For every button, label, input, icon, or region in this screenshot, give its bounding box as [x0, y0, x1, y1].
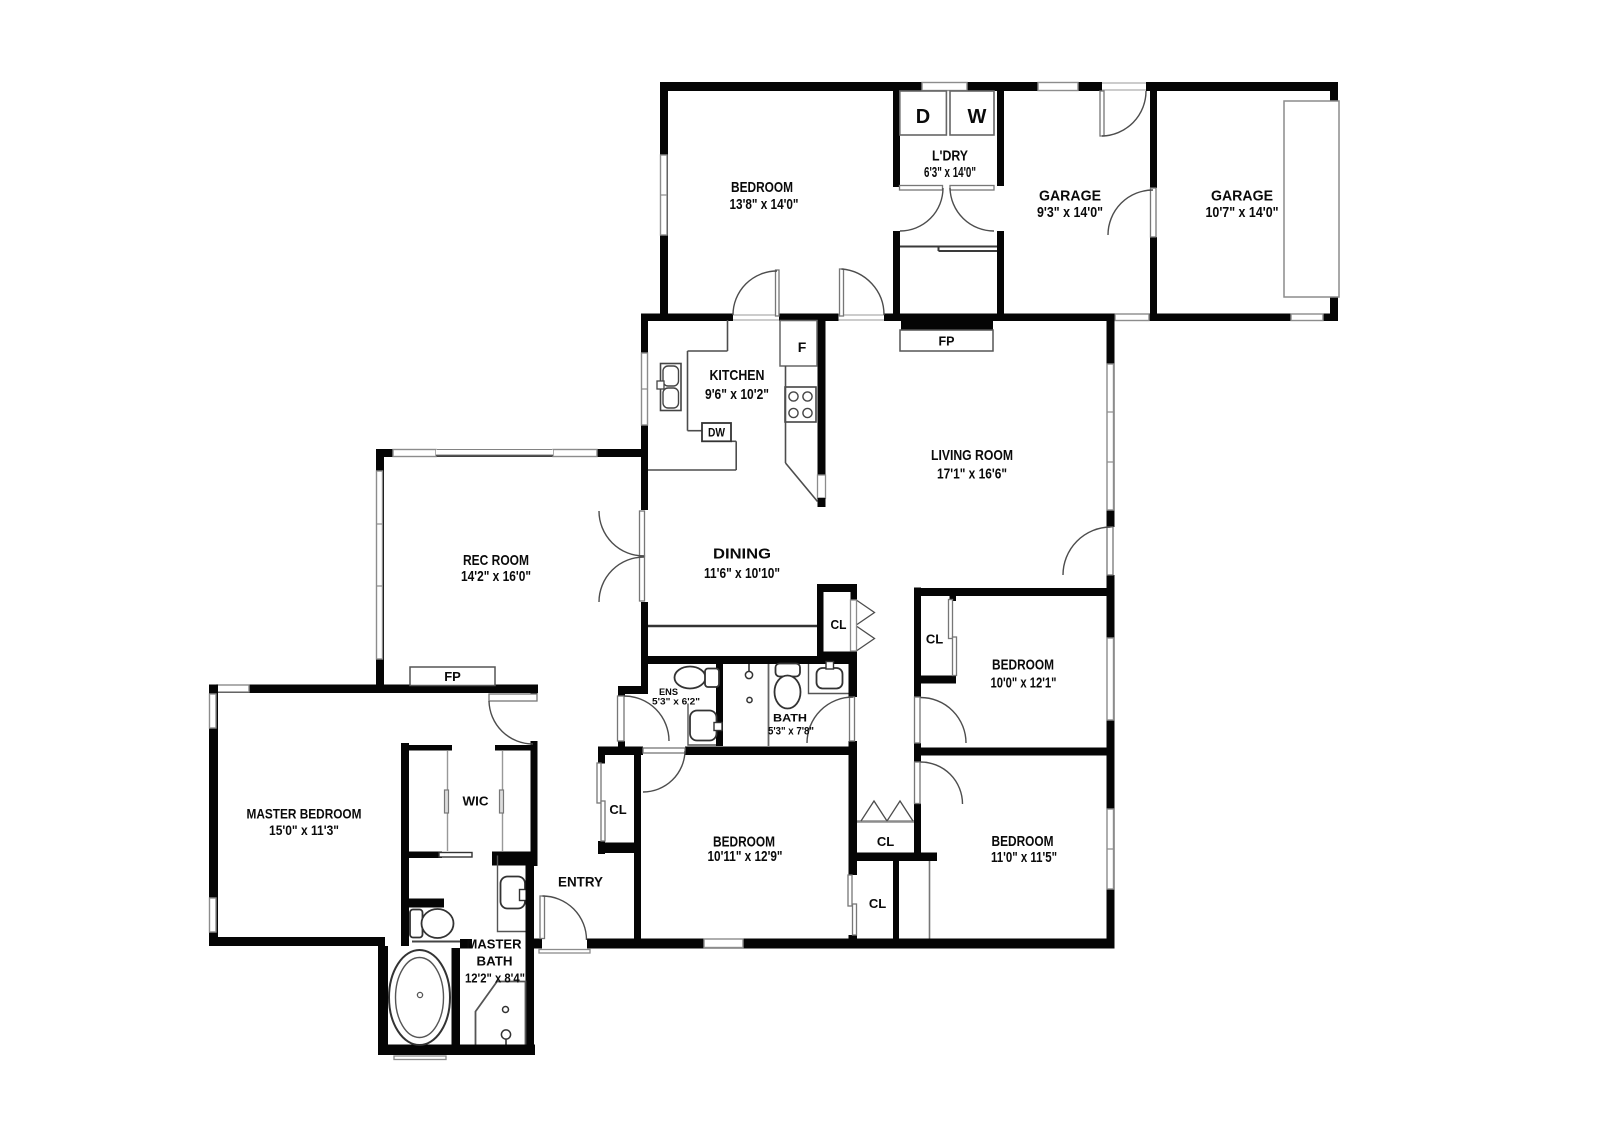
svg-text:11'6" x 10'10": 11'6" x 10'10": [704, 565, 780, 582]
svg-text:BEDROOM: BEDROOM: [992, 657, 1054, 674]
svg-text:FP: FP: [444, 669, 461, 684]
svg-text:WIC: WIC: [463, 794, 490, 809]
svg-text:6'3" x 14'0": 6'3" x 14'0": [924, 164, 976, 181]
svg-text:9'6" x 10'2": 9'6" x 10'2": [705, 386, 769, 403]
svg-text:BEDROOM: BEDROOM: [731, 179, 793, 196]
svg-text:BATH: BATH: [773, 713, 807, 725]
svg-text:13'8" x 14'0": 13'8" x 14'0": [730, 196, 799, 213]
svg-text:CL: CL: [831, 617, 847, 632]
svg-text:CL: CL: [869, 896, 886, 911]
svg-text:D: D: [916, 106, 930, 128]
svg-text:17'1" x 16'6": 17'1" x 16'6": [937, 466, 1007, 483]
svg-text:DW: DW: [708, 426, 726, 440]
svg-text:DINING: DINING: [713, 546, 771, 563]
svg-text:12'2" x 8'4": 12'2" x 8'4": [465, 971, 525, 986]
svg-text:10'11" x 12'9": 10'11" x 12'9": [708, 848, 783, 865]
svg-text:GARAGE: GARAGE: [1039, 188, 1101, 205]
svg-text:MASTER: MASTER: [467, 937, 523, 952]
svg-text:BATH: BATH: [477, 954, 513, 969]
svg-text:ENTRY: ENTRY: [558, 874, 604, 890]
svg-text:LIVING ROOM: LIVING ROOM: [931, 447, 1013, 464]
svg-text:MASTER BEDROOM: MASTER BEDROOM: [247, 806, 362, 822]
svg-text:KITCHEN: KITCHEN: [710, 367, 765, 384]
svg-text:CL: CL: [877, 834, 894, 849]
svg-text:5'3" x 7'8": 5'3" x 7'8": [768, 726, 814, 738]
svg-text:W: W: [968, 106, 987, 128]
svg-text:10'7" x 14'0": 10'7" x 14'0": [1206, 204, 1279, 221]
svg-text:F: F: [798, 339, 807, 355]
svg-text:L'DRY: L'DRY: [932, 148, 968, 165]
svg-text:CL: CL: [926, 632, 943, 647]
svg-text:BEDROOM: BEDROOM: [992, 833, 1054, 850]
svg-text:CL: CL: [609, 802, 626, 817]
svg-text:14'2" x 16'0": 14'2" x 16'0": [461, 568, 531, 585]
svg-text:REC ROOM: REC ROOM: [463, 552, 529, 569]
svg-text:FP: FP: [939, 334, 955, 349]
svg-text:9'3" x 14'0": 9'3" x 14'0": [1037, 204, 1103, 221]
svg-text:5'3" x 6'2": 5'3" x 6'2": [652, 697, 700, 708]
svg-text:10'0" x 12'1": 10'0" x 12'1": [991, 675, 1057, 692]
svg-text:15'0" x 11'3": 15'0" x 11'3": [269, 822, 339, 838]
svg-text:GARAGE: GARAGE: [1211, 188, 1273, 205]
svg-text:11'0" x 11'5": 11'0" x 11'5": [991, 849, 1057, 866]
